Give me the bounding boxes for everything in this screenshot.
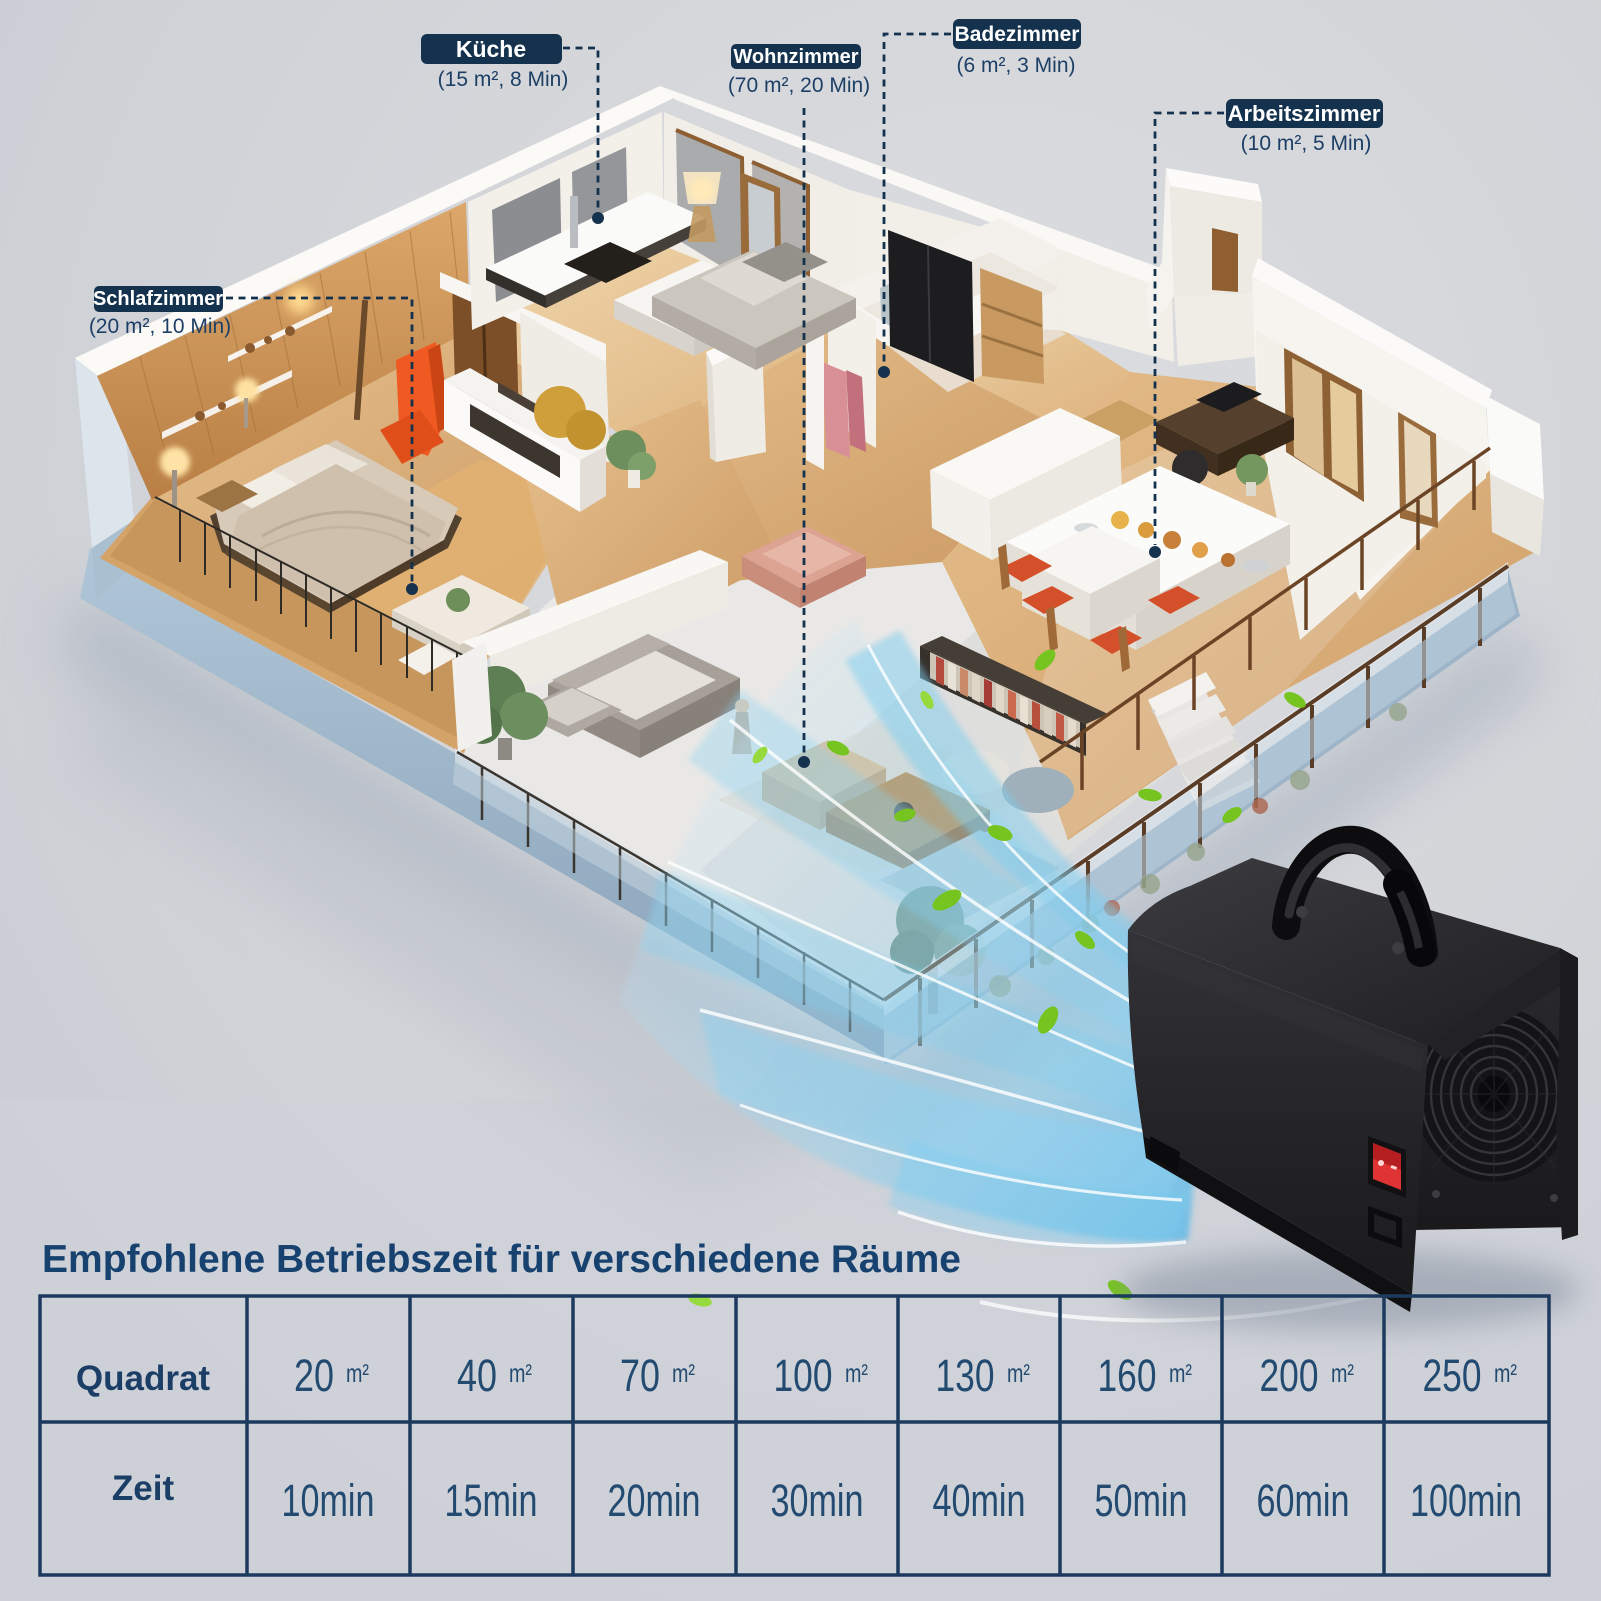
- svg-text:m²: m²: [1169, 1358, 1192, 1388]
- svg-text:250: 250: [1423, 1350, 1482, 1401]
- svg-text:(70 m², 20 Min): (70 m², 20 Min): [728, 74, 870, 97]
- svg-text:m²: m²: [845, 1358, 868, 1388]
- svg-text:m²: m²: [1494, 1358, 1517, 1388]
- svg-text:Badezimmer: Badezimmer: [955, 23, 1080, 46]
- svg-text:(6 m², 3 Min): (6 m², 3 Min): [956, 54, 1075, 77]
- svg-text:Quadrat: Quadrat: [76, 1359, 211, 1398]
- svg-text:m²: m²: [672, 1358, 695, 1388]
- svg-text:60min: 60min: [1257, 1475, 1350, 1526]
- svg-text:20min: 20min: [608, 1475, 701, 1526]
- svg-text:Empfohlene Betriebszeit für ve: Empfohlene Betriebszeit für verschiedene…: [42, 1238, 961, 1281]
- svg-text:100min: 100min: [1410, 1475, 1522, 1526]
- svg-text:200: 200: [1260, 1350, 1319, 1401]
- svg-text:m²: m²: [346, 1358, 369, 1388]
- svg-text:50min: 50min: [1095, 1475, 1188, 1526]
- svg-text:Schlafzimmer: Schlafzimmer: [93, 288, 223, 310]
- svg-text:20: 20: [294, 1350, 334, 1401]
- svg-text:100: 100: [774, 1350, 833, 1401]
- svg-text:40min: 40min: [933, 1475, 1026, 1526]
- svg-text:m²: m²: [1331, 1358, 1354, 1388]
- svg-text:Wohnzimmer: Wohnzimmer: [733, 46, 858, 68]
- svg-text:m²: m²: [1007, 1358, 1030, 1388]
- svg-text:m²: m²: [509, 1358, 532, 1388]
- svg-text:70: 70: [620, 1350, 660, 1401]
- svg-text:160: 160: [1098, 1350, 1157, 1401]
- svg-text:(10 m², 5 Min): (10 m², 5 Min): [1241, 132, 1372, 155]
- svg-text:130: 130: [936, 1350, 995, 1401]
- svg-text:Küche: Küche: [456, 36, 526, 62]
- svg-text:(20 m², 10 Min): (20 m², 10 Min): [89, 315, 231, 338]
- svg-text:15min: 15min: [445, 1475, 538, 1526]
- svg-text:30min: 30min: [771, 1475, 864, 1526]
- svg-text:Zeit: Zeit: [112, 1469, 175, 1508]
- svg-text:(15 m², 8 Min): (15 m², 8 Min): [438, 68, 569, 91]
- svg-text:10min: 10min: [282, 1475, 375, 1526]
- svg-text:40: 40: [457, 1350, 497, 1401]
- svg-text:Arbeitszimmer: Arbeitszimmer: [1228, 101, 1381, 126]
